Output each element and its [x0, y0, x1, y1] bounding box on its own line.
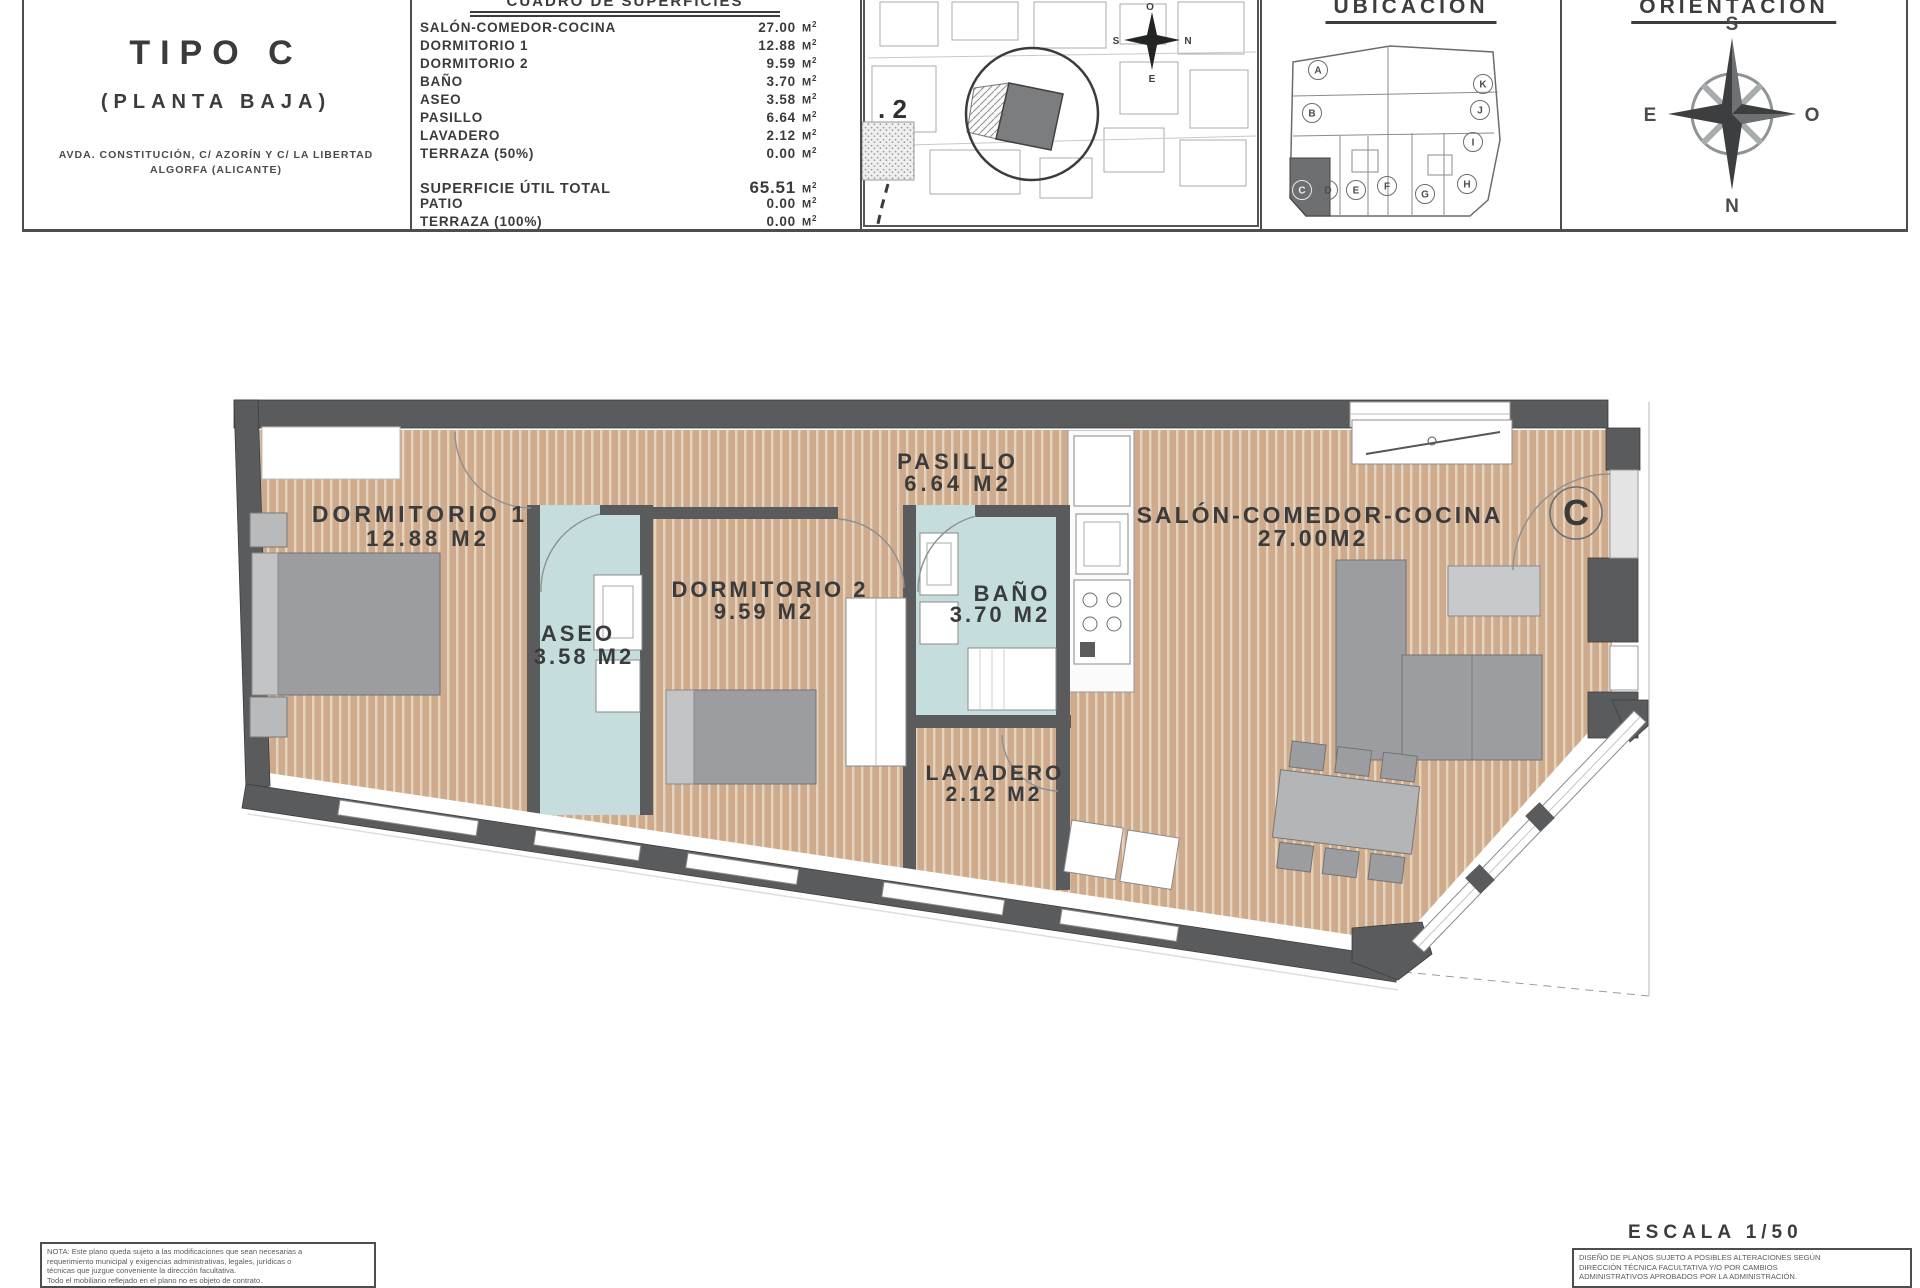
unit-mark-letter: C	[1563, 492, 1589, 533]
map-compass-bottom: E	[1149, 74, 1156, 85]
ubicacion-diagram: A K B J I C D E F G H	[1262, 28, 1560, 228]
sofa-chaise	[1336, 560, 1406, 760]
row-label: PATIO	[420, 196, 708, 211]
row-label: SUPERFICIE ÚTIL TOTAL	[420, 181, 708, 197]
map-compass-top: O	[1146, 2, 1154, 13]
note-line: DISEÑO DE PLANOS SUJETO A POSIBLES ALTER…	[1579, 1253, 1905, 1263]
row-value: 6.64	[708, 110, 796, 125]
room-area: 6.64 M2	[904, 471, 1012, 496]
coffee-table	[1448, 566, 1540, 616]
bathtub	[968, 648, 1056, 710]
svg-text:B: B	[1308, 109, 1315, 120]
svg-text:C: C	[1298, 186, 1305, 197]
room-label: SALÓN-COMEDOR-COCINA	[1137, 501, 1504, 528]
chair	[1277, 842, 1314, 872]
entrance-pilaster	[1606, 428, 1640, 470]
ubicacion-title: UBICACIÓN	[1326, 0, 1497, 24]
note-line: requerimiento municipal y exigencias adm…	[47, 1257, 369, 1267]
row-value: 65.51	[708, 178, 796, 198]
row-value: 9.59	[708, 56, 796, 71]
svg-text:I: I	[1472, 138, 1475, 149]
note-line: Todo el mobiliario reflejado en el plano…	[47, 1276, 369, 1286]
note-box-right: DISEÑO DE PLANOS SUJETO A POSIBLES ALTER…	[1572, 1248, 1912, 1288]
svg-text:A: A	[1314, 66, 1321, 77]
site-plan-map: . 2 O S N E	[862, 0, 1260, 229]
fridge	[1074, 436, 1130, 506]
scale-label: ESCALA 1/50	[1628, 1222, 1803, 1244]
surface-table-title: CUADRO DE SUPERFICIES	[470, 0, 780, 17]
row-unit: M2	[796, 74, 838, 89]
plot-boundary-dashed	[1404, 972, 1649, 996]
row-unit: M2	[796, 214, 838, 229]
row-unit: M2	[796, 146, 838, 161]
svg-text:H: H	[1463, 180, 1470, 191]
address-line-1: AVDA. CONSTITUCIÓN, C/ AZORÍN Y C/ LA LI…	[24, 148, 408, 163]
right-wall-segment	[1588, 558, 1638, 642]
title-block: TIPO C (PLANTA BAJA) AVDA. CONSTITUCIÓN,…	[24, 0, 408, 229]
row-label: LAVADERO	[420, 128, 708, 143]
row-label: DORMITORIO 1	[420, 38, 708, 53]
row-value: 12.88	[708, 38, 796, 53]
compass-left-label: E	[1644, 105, 1657, 126]
header-divider	[410, 0, 412, 231]
header-bottom-line	[22, 229, 1908, 232]
table-row: TERRAZA (50%) 0.00 M2	[420, 146, 838, 164]
room-label: DORMITORIO 1	[312, 501, 528, 527]
row-label: TERRAZA (100%)	[420, 214, 708, 229]
row-value: 2.12	[708, 128, 796, 143]
note-box-left: NOTA: Este plano queda sujeto a las modi…	[40, 1242, 376, 1288]
double-bed	[278, 553, 440, 695]
table-row: PASILLO 6.64 M2	[420, 110, 838, 128]
table-row: BAÑO 3.70 M2	[420, 74, 838, 92]
svg-text:E: E	[1353, 186, 1360, 197]
address: AVDA. CONSTITUCIÓN, C/ AZORÍN Y C/ LA LI…	[24, 148, 408, 178]
table-row: ASEO 3.58 M2	[420, 92, 838, 110]
table-row: DORMITORIO 2 9.59 M2	[420, 56, 838, 74]
bed-pillow	[666, 690, 694, 784]
row-label: ASEO	[420, 92, 708, 107]
table-row: PATIO 0.00 M2	[420, 196, 838, 214]
washing-machine	[1064, 820, 1123, 879]
svg-text:F: F	[1384, 182, 1390, 193]
sink	[920, 533, 958, 595]
plan-floor-subtitle: (PLANTA BAJA)	[24, 91, 408, 114]
highlighted-plot	[996, 83, 1063, 150]
chair	[1289, 741, 1326, 771]
room-area: 3.58 M2	[534, 644, 635, 669]
chair	[1335, 747, 1372, 777]
row-unit: M2	[796, 110, 838, 125]
table-row: TERRAZA (100%) 0.00 M2	[420, 214, 838, 232]
table-row: SALÓN-COMEDOR-COCINA 27.00 M2	[420, 20, 838, 38]
svg-text:K: K	[1479, 80, 1487, 91]
row-unit: M2	[796, 56, 838, 71]
surface-table: SALÓN-COMEDOR-COCINA 27.00 M2 DORMITORIO…	[420, 20, 838, 232]
row-unit: M2	[796, 196, 838, 211]
row-unit: M2	[796, 181, 838, 196]
compass-bottom-label: N	[1725, 196, 1739, 217]
row-unit: M2	[796, 92, 838, 107]
row-label: DORMITORIO 2	[420, 56, 708, 71]
map-compass-left: S	[1113, 36, 1120, 47]
chair	[1368, 853, 1405, 883]
row-label: BAÑO	[420, 74, 708, 89]
floor-plan: DORMITORIO 1 12.88 M2 ASEO 3.58 M2 DORMI…	[0, 233, 1920, 1240]
row-unit: M2	[796, 128, 838, 143]
row-label: TERRAZA (50%)	[420, 146, 708, 161]
row-label: PASILLO	[420, 110, 708, 125]
svg-text:J: J	[1477, 106, 1483, 117]
note-line: técnicas que juzgue conveniente la direc…	[47, 1266, 369, 1276]
entrance-door-leaf	[1610, 470, 1638, 558]
compass-rose: S N E O	[1560, 16, 1908, 228]
chair	[1380, 752, 1417, 782]
svg-text:D: D	[1324, 186, 1331, 197]
chair	[1322, 848, 1359, 878]
row-value: 27.00	[708, 20, 796, 35]
row-unit: M2	[796, 20, 838, 35]
row-value: 0.00	[708, 196, 796, 211]
room-label: ASEO	[541, 621, 615, 646]
row-value: 3.58	[708, 92, 796, 107]
nightstand	[250, 513, 287, 547]
compass-right-label: O	[1805, 105, 1820, 126]
row-label: SALÓN-COMEDOR-COCINA	[420, 20, 708, 35]
room-area: 9.59 M2	[714, 599, 815, 624]
note-line: ADMINISTRATIVOS APROBADOS POR LA ADMINIS…	[1579, 1272, 1905, 1282]
rug	[262, 427, 400, 479]
room-area: 3.70 M2	[950, 602, 1051, 627]
table-total-row: SUPERFICIE ÚTIL TOTAL 65.51 M2	[420, 178, 838, 196]
tv-unit	[1352, 420, 1512, 464]
table-row: LAVADERO 2.12 M2	[420, 128, 838, 146]
row-value: 0.00	[708, 146, 796, 161]
room-label: LAVADERO	[926, 762, 1065, 785]
dining-set	[1269, 740, 1424, 884]
plan-type-title: TIPO C	[24, 34, 408, 73]
stove-control	[1080, 642, 1095, 657]
right-window	[1610, 646, 1638, 690]
nightstand	[250, 697, 287, 737]
laundry-sink	[1120, 830, 1179, 889]
compass-top-label: S	[1726, 16, 1739, 35]
row-value: 0.00	[708, 214, 796, 229]
map-compass-right: N	[1184, 36, 1191, 47]
note-line: NOTA: Este plano queda sujeto a las modi…	[47, 1247, 369, 1257]
table-row: DORMITORIO 1 12.88 M2	[420, 38, 838, 56]
note-line: DIRECCIÓN TÉCNICA FACULTATIVA Y/O POR CA…	[1579, 1263, 1905, 1273]
row-unit: M2	[796, 38, 838, 53]
address-line-2: ALGORFA (ALICANTE)	[24, 163, 408, 178]
room-area: 27.00M2	[1258, 525, 1369, 551]
row-value: 3.70	[708, 74, 796, 89]
stippled-plot	[862, 122, 914, 180]
svg-text:G: G	[1421, 190, 1429, 201]
room-area: 12.88 M2	[366, 526, 490, 551]
bed-pillows	[252, 553, 278, 695]
plot-number-label: . 2	[878, 94, 907, 124]
room-area: 2.12 M2	[946, 783, 1043, 806]
